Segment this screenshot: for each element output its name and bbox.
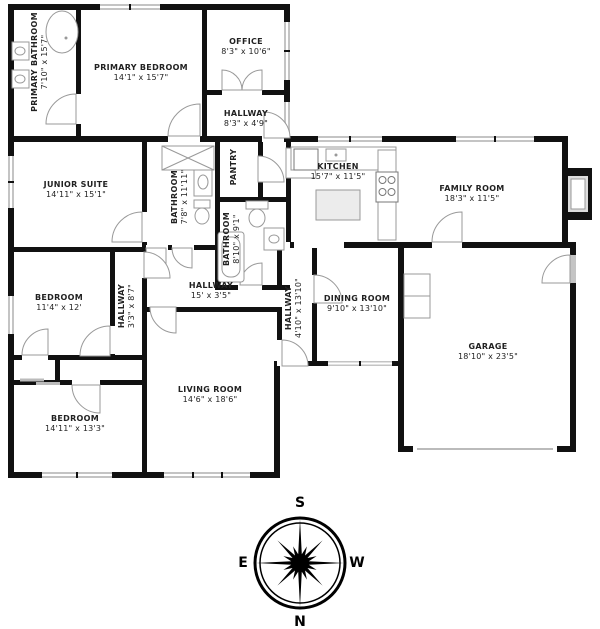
toilet-tank bbox=[246, 201, 268, 209]
wall bbox=[8, 247, 147, 252]
garage-side-door bbox=[570, 255, 576, 283]
wall bbox=[215, 142, 220, 200]
fireplace bbox=[562, 168, 592, 220]
door-arc bbox=[222, 70, 242, 90]
compass-south-label: S bbox=[295, 495, 305, 511]
wall bbox=[202, 96, 207, 142]
door-arc bbox=[22, 329, 48, 355]
door-arc bbox=[46, 94, 76, 124]
wall bbox=[312, 303, 317, 366]
kitchen-island bbox=[316, 190, 360, 220]
wall bbox=[398, 242, 404, 452]
fixtures bbox=[12, 11, 430, 318]
compass-rose bbox=[255, 518, 345, 608]
wall bbox=[8, 136, 290, 142]
sink-basin bbox=[269, 235, 279, 243]
wall bbox=[202, 4, 207, 96]
window bbox=[164, 472, 250, 478]
wall bbox=[312, 247, 317, 275]
door-gap bbox=[222, 90, 262, 95]
compass-west-label: W bbox=[349, 555, 364, 571]
window bbox=[8, 296, 14, 334]
door-arc bbox=[80, 326, 110, 356]
door-arc bbox=[242, 70, 262, 90]
window bbox=[456, 136, 534, 142]
window bbox=[100, 4, 160, 10]
sink-basin bbox=[15, 47, 25, 55]
bathtub-inner bbox=[222, 237, 240, 277]
garage-shelf bbox=[404, 296, 430, 318]
tub-drain bbox=[65, 37, 68, 40]
door-gap bbox=[110, 326, 115, 354]
compass-east-label: E bbox=[238, 555, 248, 571]
faucet bbox=[335, 154, 338, 157]
doors bbox=[22, 70, 570, 413]
garage-door bbox=[417, 448, 553, 450]
wall bbox=[277, 307, 282, 340]
door-arc bbox=[150, 307, 176, 333]
door-arc bbox=[258, 156, 284, 182]
door-gap bbox=[142, 212, 147, 242]
wall bbox=[142, 307, 147, 472]
window bbox=[8, 156, 14, 208]
door-arc bbox=[314, 275, 342, 303]
floor-plan-drawing bbox=[0, 0, 600, 629]
door-gap bbox=[277, 340, 282, 366]
toilet-bowl bbox=[195, 208, 209, 224]
garage-shelf bbox=[404, 274, 430, 296]
door-arc bbox=[168, 104, 200, 136]
window bbox=[318, 136, 382, 142]
door-gap bbox=[72, 380, 100, 385]
toilet-bowl bbox=[249, 209, 265, 227]
sink-basin bbox=[15, 75, 25, 83]
wall bbox=[76, 4, 81, 94]
bathtub bbox=[46, 11, 78, 53]
cooktop bbox=[376, 172, 398, 202]
door-gap bbox=[238, 285, 262, 290]
wall bbox=[274, 366, 280, 478]
wall bbox=[55, 355, 60, 385]
door-gap bbox=[294, 242, 344, 248]
toilet-tank bbox=[194, 200, 210, 208]
fridge bbox=[294, 149, 318, 170]
door-gap bbox=[76, 94, 81, 124]
door-arc bbox=[112, 212, 142, 242]
door-arc bbox=[282, 340, 308, 366]
door-arc bbox=[542, 255, 570, 283]
door-arc bbox=[72, 385, 100, 413]
door-arc bbox=[432, 212, 462, 242]
shower-closet bbox=[162, 146, 214, 170]
floor-plan-page: PRIMARY BATHROOM 7'10" x 15'7" PRIMARY B… bbox=[0, 0, 600, 629]
compass-north-label: N bbox=[294, 614, 306, 629]
door-gap bbox=[22, 355, 48, 360]
window bbox=[328, 361, 392, 366]
sink-basin bbox=[198, 175, 208, 189]
door-arc bbox=[172, 248, 192, 268]
window bbox=[42, 472, 112, 478]
wall bbox=[277, 247, 282, 285]
door-gap bbox=[168, 136, 200, 142]
window bbox=[284, 22, 290, 80]
